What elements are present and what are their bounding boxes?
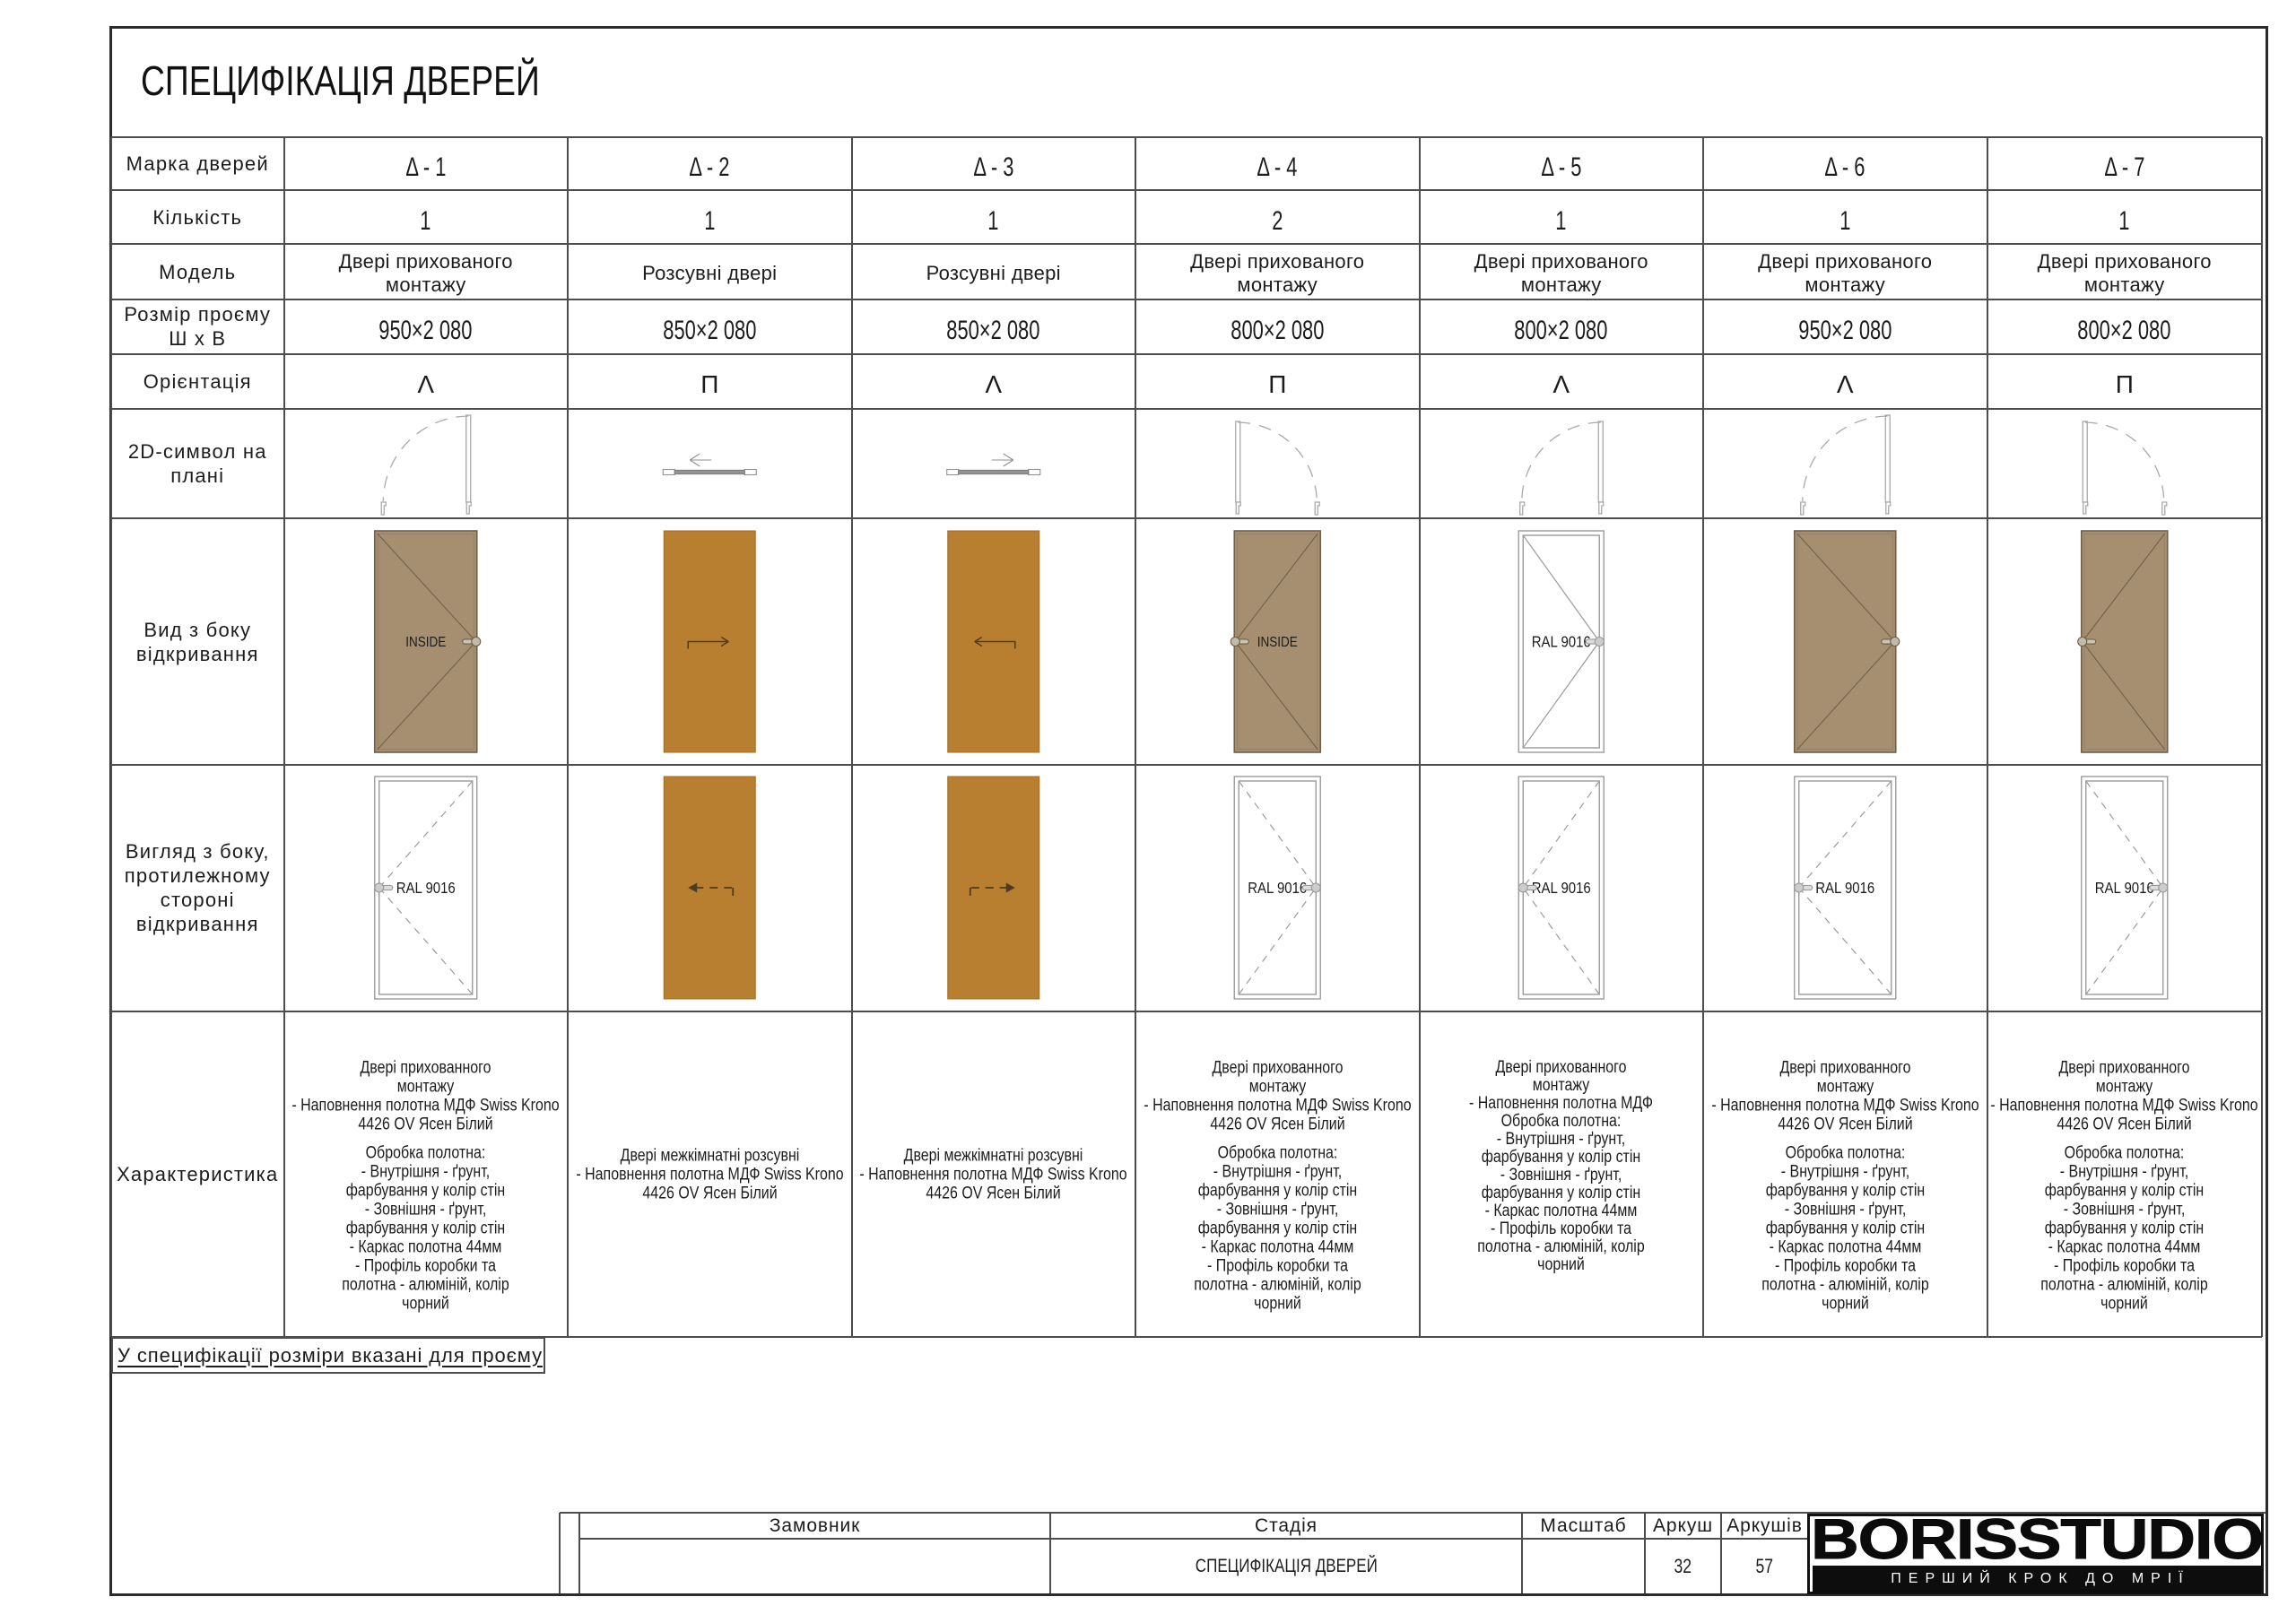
svg-text:INSIDE: INSIDE [1257,635,1298,650]
svg-text:INSIDE: INSIDE [405,635,446,650]
svg-text:RAL 9016: RAL 9016 [1532,633,1591,651]
svg-text:RAL 9016: RAL 9016 [396,879,456,897]
svg-text:RAL 9016: RAL 9016 [1532,879,1591,897]
svg-text:RAL 9016: RAL 9016 [2095,879,2154,897]
svg-text:RAL 9016: RAL 9016 [1815,879,1874,897]
svg-text:RAL 9016: RAL 9016 [1248,879,1307,897]
